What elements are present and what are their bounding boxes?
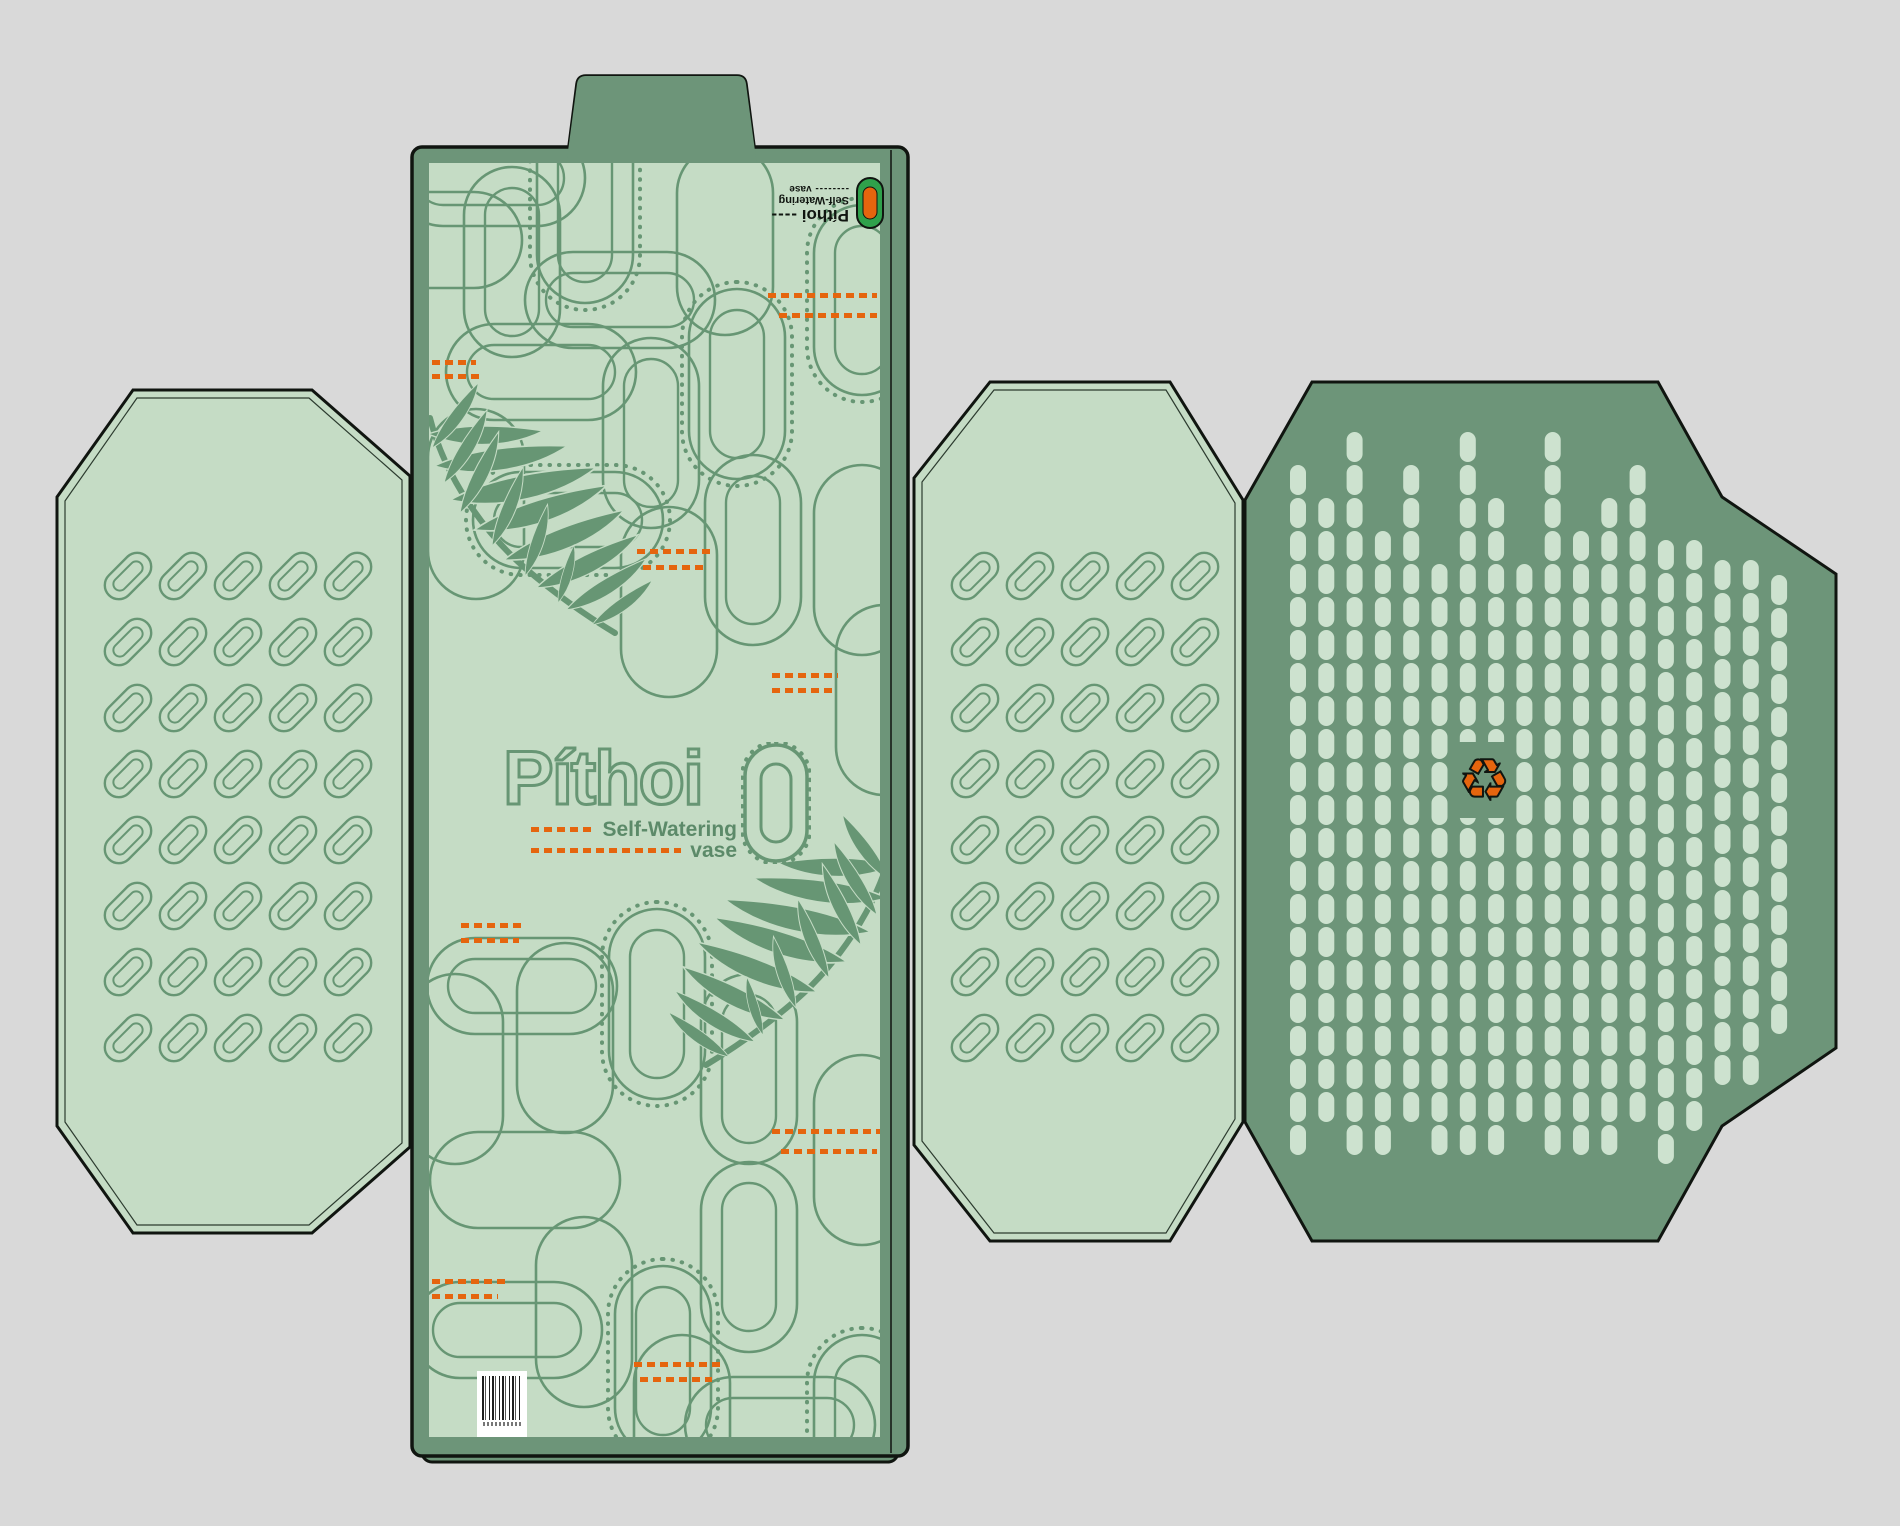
dot-capsule — [1573, 762, 1589, 792]
dot-capsule — [1686, 837, 1702, 867]
dot-capsule — [1488, 993, 1504, 1023]
dot-capsule — [1318, 894, 1334, 924]
dot-capsule — [1573, 927, 1589, 957]
dot-capsule — [1488, 498, 1504, 528]
dot-capsule — [1432, 1092, 1448, 1122]
dot-capsule — [1715, 560, 1731, 590]
dot-capsule — [1347, 498, 1363, 528]
dot-capsule — [1488, 531, 1504, 561]
dot-capsule — [1403, 1092, 1419, 1122]
dot-capsule — [1488, 663, 1504, 693]
dot-capsule — [1630, 498, 1646, 528]
dot-capsule — [1460, 531, 1476, 561]
dot-capsule — [1403, 894, 1419, 924]
dot-capsule — [1347, 729, 1363, 759]
dot-capsule — [1743, 989, 1759, 1019]
dot-capsule — [1516, 1059, 1532, 1089]
dot-capsule — [1318, 762, 1334, 792]
dot-capsule — [1715, 890, 1731, 920]
dot-capsule — [1375, 762, 1391, 792]
dot-capsule — [1290, 993, 1306, 1023]
dot-capsule — [1573, 597, 1589, 627]
dot-capsule — [1432, 1059, 1448, 1089]
dot-capsule — [1686, 639, 1702, 669]
dot-capsule — [1630, 1092, 1646, 1122]
dot-capsule — [1686, 1068, 1702, 1098]
dot-capsule — [1403, 1059, 1419, 1089]
dot-capsule — [1290, 564, 1306, 594]
dot-capsule — [1375, 795, 1391, 825]
dot-capsule — [1715, 725, 1731, 755]
dot-capsule — [1686, 573, 1702, 603]
dot-capsule — [1432, 795, 1448, 825]
dot-capsule — [1573, 630, 1589, 660]
dot-capsule — [1573, 960, 1589, 990]
dot-capsule — [1318, 1026, 1334, 1056]
dot-capsule — [1432, 1026, 1448, 1056]
dot-capsule — [1318, 795, 1334, 825]
dot-capsule — [1375, 927, 1391, 957]
dot-capsule — [1432, 828, 1448, 858]
dot-capsule — [1658, 837, 1674, 867]
dot-capsule — [1290, 630, 1306, 660]
dot-capsule — [1432, 729, 1448, 759]
dot-capsule — [1630, 795, 1646, 825]
dot-capsule — [1601, 498, 1617, 528]
dot-capsule — [1630, 762, 1646, 792]
dot-capsule — [1290, 960, 1306, 990]
top-tuck-tab-fill — [566, 76, 757, 166]
dot-capsule — [1432, 1125, 1448, 1155]
dot-capsule — [1771, 608, 1787, 638]
dot-capsule — [1573, 1026, 1589, 1056]
dot-capsule — [1516, 795, 1532, 825]
dot-capsule — [1658, 705, 1674, 735]
dot-capsule — [1403, 861, 1419, 891]
dot-capsule — [1432, 927, 1448, 957]
right-side-panel — [914, 382, 1243, 1241]
dot-capsule — [1658, 1068, 1674, 1098]
dot-capsule — [1516, 960, 1532, 990]
dot-capsule — [1488, 630, 1504, 660]
dot-capsule — [1290, 696, 1306, 726]
dot-capsule — [1771, 938, 1787, 968]
dot-capsule — [1403, 795, 1419, 825]
dot-capsule — [1318, 1092, 1334, 1122]
dot-capsule — [1743, 824, 1759, 854]
dot-capsule — [1545, 564, 1561, 594]
dot-capsule — [1715, 857, 1731, 887]
dot-capsule — [1432, 597, 1448, 627]
dot-capsule — [1403, 927, 1419, 957]
dot-capsule — [1488, 564, 1504, 594]
dot-capsule — [1347, 432, 1363, 462]
dot-capsule — [1686, 705, 1702, 735]
dot-capsule — [1347, 663, 1363, 693]
dot-capsule — [1771, 806, 1787, 836]
dot-capsule — [1658, 573, 1674, 603]
dot-capsule — [1658, 1134, 1674, 1164]
dot-capsule — [1573, 1092, 1589, 1122]
dot-capsule — [1715, 758, 1731, 788]
packaging-dieline-canvas: Píthoi Self-Watering vase P — [0, 0, 1900, 1526]
dot-capsule — [1488, 1125, 1504, 1155]
dot-capsule — [1601, 1026, 1617, 1056]
dot-capsule — [1630, 861, 1646, 891]
dot-capsule — [1290, 498, 1306, 528]
dot-capsule — [1545, 465, 1561, 495]
dot-capsule — [1601, 795, 1617, 825]
dot-capsule — [1488, 828, 1504, 858]
dot-capsule — [1347, 993, 1363, 1023]
dot-capsule — [1545, 960, 1561, 990]
dot-capsule — [1347, 696, 1363, 726]
dot-capsule — [1516, 993, 1532, 1023]
dot-capsule — [1318, 729, 1334, 759]
dot-capsule — [1375, 1125, 1391, 1155]
dot-capsule — [1375, 828, 1391, 858]
dot-capsule — [1573, 531, 1589, 561]
dot-capsule — [1658, 738, 1674, 768]
dot-capsule — [1460, 1125, 1476, 1155]
dot-capsule — [1686, 969, 1702, 999]
dot-capsule — [1460, 993, 1476, 1023]
dot-capsule — [1601, 828, 1617, 858]
dot-capsule — [1658, 1035, 1674, 1065]
dot-capsule — [1545, 1092, 1561, 1122]
dot-capsule — [1375, 1026, 1391, 1056]
dot-capsule — [1403, 630, 1419, 660]
dot-capsule — [1686, 804, 1702, 834]
dot-capsule — [1630, 597, 1646, 627]
dot-capsule — [1686, 606, 1702, 636]
dot-capsule — [1318, 1059, 1334, 1089]
dot-capsule — [1715, 1055, 1731, 1085]
dot-capsule — [1432, 993, 1448, 1023]
dot-capsule — [1318, 927, 1334, 957]
dot-capsule — [1658, 771, 1674, 801]
dot-capsule — [1488, 1059, 1504, 1089]
dot-capsule — [1573, 861, 1589, 891]
dot-capsule — [1601, 696, 1617, 726]
dot-capsule — [1516, 1092, 1532, 1122]
dot-capsule — [1573, 1059, 1589, 1089]
dot-capsule — [1318, 828, 1334, 858]
dot-capsule — [1516, 861, 1532, 891]
dot-capsule — [1630, 927, 1646, 957]
dot-capsule — [1771, 905, 1787, 935]
dot-capsule — [1658, 903, 1674, 933]
dot-capsule — [1403, 465, 1419, 495]
dot-capsule — [1488, 861, 1504, 891]
dot-capsule — [1347, 1059, 1363, 1089]
dot-capsule — [1715, 1022, 1731, 1052]
dot-capsule — [1290, 465, 1306, 495]
dot-capsule — [1658, 606, 1674, 636]
dot-capsule — [1460, 1026, 1476, 1056]
dot-capsule — [1516, 1026, 1532, 1056]
dot-capsule — [1318, 993, 1334, 1023]
dot-capsule — [1318, 597, 1334, 627]
dot-capsule — [1432, 564, 1448, 594]
dot-capsule — [1290, 1059, 1306, 1089]
dot-capsule — [1375, 531, 1391, 561]
dot-capsule — [1318, 531, 1334, 561]
dot-capsule — [1290, 762, 1306, 792]
dot-capsule — [1488, 1026, 1504, 1056]
dot-capsule — [1715, 626, 1731, 656]
dot-capsule — [1601, 993, 1617, 1023]
dot-capsule — [1545, 630, 1561, 660]
dot-capsule — [1488, 960, 1504, 990]
dot-capsule — [1488, 1092, 1504, 1122]
dot-capsule — [1432, 630, 1448, 660]
dot-capsule — [1403, 498, 1419, 528]
dot-capsule — [1403, 828, 1419, 858]
dot-capsule — [1318, 663, 1334, 693]
dot-capsule — [1516, 729, 1532, 759]
dot-capsule — [1658, 870, 1674, 900]
dot-capsule — [1601, 1125, 1617, 1155]
dot-capsule — [1573, 795, 1589, 825]
dot-capsule — [1516, 696, 1532, 726]
dot-capsule — [1460, 498, 1476, 528]
dot-capsule — [1545, 993, 1561, 1023]
dot-capsule — [1743, 1022, 1759, 1052]
dot-capsule — [1347, 531, 1363, 561]
dot-capsule — [1488, 597, 1504, 627]
dot-capsule — [1686, 903, 1702, 933]
dot-capsule — [1516, 894, 1532, 924]
dot-capsule — [1630, 828, 1646, 858]
dot-capsule — [1573, 1125, 1589, 1155]
dot-capsule — [1686, 936, 1702, 966]
dot-capsule — [1545, 927, 1561, 957]
dot-capsule — [1318, 861, 1334, 891]
dot-capsule — [1460, 597, 1476, 627]
dot-capsule — [1545, 894, 1561, 924]
dot-capsule — [1630, 894, 1646, 924]
dot-capsule — [1375, 663, 1391, 693]
dot-capsule — [1375, 1059, 1391, 1089]
dot-capsule — [1347, 1125, 1363, 1155]
dot-capsule — [1658, 1002, 1674, 1032]
dot-capsule — [1516, 564, 1532, 594]
dot-capsule — [1460, 564, 1476, 594]
dot-capsule — [1573, 729, 1589, 759]
dot-capsule — [1715, 989, 1731, 1019]
dot-capsule — [1403, 531, 1419, 561]
dot-capsule — [1516, 927, 1532, 957]
dot-capsule — [1318, 960, 1334, 990]
dot-capsule — [1686, 672, 1702, 702]
dot-capsule — [1516, 663, 1532, 693]
dot-capsule — [1686, 771, 1702, 801]
dot-capsule — [1545, 531, 1561, 561]
dot-capsule — [1545, 1026, 1561, 1056]
dot-capsule — [1686, 540, 1702, 570]
dot-capsule — [1630, 696, 1646, 726]
dot-capsule — [1601, 1059, 1617, 1089]
dot-capsule — [1460, 861, 1476, 891]
dot-capsule — [1460, 927, 1476, 957]
dot-capsule — [1460, 1092, 1476, 1122]
dot-capsule — [1347, 1026, 1363, 1056]
dot-capsule — [1290, 1092, 1306, 1122]
dot-capsule — [1771, 839, 1787, 869]
dot-capsule — [1686, 870, 1702, 900]
dot-capsule — [1375, 960, 1391, 990]
dot-capsule — [1743, 593, 1759, 623]
dot-capsule — [1743, 560, 1759, 590]
dot-capsule — [1375, 861, 1391, 891]
dot-capsule — [1715, 659, 1731, 689]
dot-capsule — [1460, 432, 1476, 462]
dot-capsule — [1686, 1035, 1702, 1065]
dot-capsule — [1516, 630, 1532, 660]
dot-capsule — [1771, 575, 1787, 605]
dot-capsule — [1743, 791, 1759, 821]
dot-capsule — [1630, 465, 1646, 495]
dot-capsule — [1601, 861, 1617, 891]
dot-capsule — [1601, 1092, 1617, 1122]
dot-capsule — [1715, 692, 1731, 722]
dot-capsule — [1601, 729, 1617, 759]
dot-capsule — [1516, 762, 1532, 792]
dot-capsule — [1743, 626, 1759, 656]
dot-capsule — [1290, 1026, 1306, 1056]
dot-capsule — [1601, 894, 1617, 924]
dot-capsule — [1516, 828, 1532, 858]
dot-capsule — [1545, 663, 1561, 693]
dot-capsule — [1573, 828, 1589, 858]
dot-capsule — [1630, 630, 1646, 660]
dot-capsule — [1375, 597, 1391, 627]
dot-capsule — [1488, 894, 1504, 924]
dot-capsule — [1318, 498, 1334, 528]
dot-capsule — [1347, 564, 1363, 594]
dot-capsule — [1290, 894, 1306, 924]
dot-capsule — [1545, 432, 1561, 462]
dot-capsule — [1488, 927, 1504, 957]
dot-capsule — [1743, 725, 1759, 755]
dot-capsule — [1545, 1125, 1561, 1155]
dot-capsule — [1743, 659, 1759, 689]
dot-capsule — [1715, 791, 1731, 821]
dot-capsule — [1771, 674, 1787, 704]
dot-capsule — [1318, 630, 1334, 660]
dot-capsule — [1432, 894, 1448, 924]
dot-capsule — [1743, 923, 1759, 953]
dot-capsule — [1601, 663, 1617, 693]
dot-capsule — [1573, 894, 1589, 924]
dot-capsule — [1347, 597, 1363, 627]
dot-capsule — [1545, 597, 1561, 627]
dot-capsule — [1743, 956, 1759, 986]
dot-capsule — [1290, 663, 1306, 693]
dot-capsule — [1347, 828, 1363, 858]
dot-capsule — [1290, 861, 1306, 891]
dot-capsule — [1658, 1101, 1674, 1131]
dot-capsule — [1460, 894, 1476, 924]
dot-capsule — [1601, 927, 1617, 957]
dot-capsule — [1347, 1092, 1363, 1122]
dot-capsule — [1771, 773, 1787, 803]
dot-capsule — [1630, 663, 1646, 693]
dot-capsule — [1630, 1059, 1646, 1089]
dot-capsule — [1460, 630, 1476, 660]
dot-capsule — [1290, 927, 1306, 957]
dot-capsule — [1347, 927, 1363, 957]
dot-capsule — [1403, 696, 1419, 726]
dot-capsule — [1573, 993, 1589, 1023]
dot-capsule — [1658, 936, 1674, 966]
dot-capsule — [1658, 804, 1674, 834]
dot-capsule — [1686, 738, 1702, 768]
dot-capsule — [1715, 956, 1731, 986]
dot-capsule — [1347, 795, 1363, 825]
dot-capsule — [1347, 630, 1363, 660]
dot-capsule — [1432, 960, 1448, 990]
dot-capsule — [1573, 696, 1589, 726]
dot-capsule — [1347, 960, 1363, 990]
dot-capsule — [1545, 696, 1561, 726]
dieline-svg — [0, 0, 1900, 1526]
dot-capsule — [1715, 923, 1731, 953]
dot-capsule — [1432, 663, 1448, 693]
dot-capsule — [1771, 740, 1787, 770]
dot-capsule — [1403, 597, 1419, 627]
dot-capsule — [1658, 672, 1674, 702]
dot-capsule — [1432, 696, 1448, 726]
dot-capsule — [1601, 960, 1617, 990]
dot-capsule — [1375, 894, 1391, 924]
dot-capsule — [1403, 993, 1419, 1023]
dot-capsule — [1771, 872, 1787, 902]
dot-capsule — [1771, 971, 1787, 1001]
dot-capsule — [1545, 795, 1561, 825]
dot-capsule — [1743, 692, 1759, 722]
dot-capsule — [1290, 1125, 1306, 1155]
dot-capsule — [1743, 1055, 1759, 1085]
dot-capsule — [1545, 762, 1561, 792]
dot-capsule — [1601, 531, 1617, 561]
dot-capsule — [1347, 894, 1363, 924]
dot-capsule — [1403, 960, 1419, 990]
dot-capsule — [1630, 960, 1646, 990]
dot-capsule — [1516, 597, 1532, 627]
dot-capsule — [1375, 630, 1391, 660]
dot-capsule — [1771, 1004, 1787, 1034]
dot-capsule — [1318, 564, 1334, 594]
dot-capsule — [1460, 696, 1476, 726]
dot-capsule — [1545, 729, 1561, 759]
dot-capsule — [1347, 465, 1363, 495]
dot-capsule — [1545, 498, 1561, 528]
dot-capsule — [1630, 729, 1646, 759]
dot-capsule — [1460, 465, 1476, 495]
dot-capsule — [1686, 1002, 1702, 1032]
dot-capsule — [1658, 540, 1674, 570]
dot-capsule — [1403, 1026, 1419, 1056]
dot-capsule — [1460, 663, 1476, 693]
dot-capsule — [1771, 641, 1787, 671]
dot-capsule — [1432, 861, 1448, 891]
dot-capsule — [1375, 993, 1391, 1023]
left-side-flap — [57, 390, 410, 1233]
dot-capsule — [1375, 564, 1391, 594]
dot-capsule — [1601, 564, 1617, 594]
